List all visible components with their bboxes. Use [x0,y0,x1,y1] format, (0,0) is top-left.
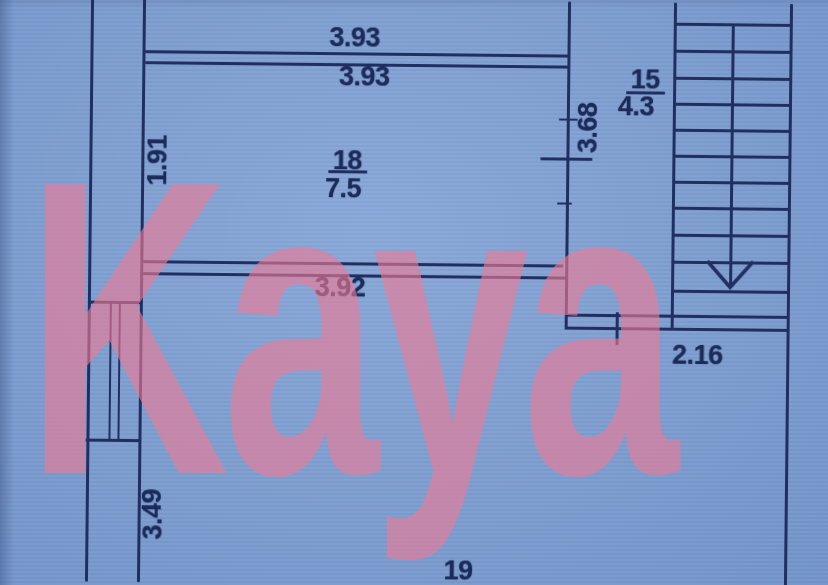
mid-wall-tick-dimension [540,157,592,160]
hall-bottom-wall-upper [565,314,790,319]
left-wall-outer-line [85,0,94,582]
window-bottom-line [85,439,141,443]
right-wall [784,4,793,585]
window-pane-line-2 [117,303,120,440]
window-top-line [88,301,143,305]
dim-upper-width-label: 3.93 [329,24,380,52]
mid-wall-tick-lower [557,202,572,204]
stair-direction-arrow [705,259,755,292]
room19-number-label: 19 [443,558,472,585]
dim-room18-lower-width-label: 3.92 [315,273,366,301]
window-pane-line-1 [108,303,111,440]
hall-bottom-wall-lower [565,327,790,332]
mid-wall [565,2,571,330]
room15-area-label: 4.3 [618,93,654,120]
dim-stair-hall-width-label: 2.16 [672,341,723,369]
room18-bottom-wall-upper [143,260,563,267]
dim-stair-hall-depth-label: 3.68 [574,102,602,153]
dim-left-wall-label: 3.49 [139,489,167,540]
dim-room18-width-label: 3.93 [339,63,390,91]
floorplan-scan: 3.93 3.93 1.91 3.92 3.68 2.16 3.49 18 7.… [0,0,828,585]
dim-room18-depth-label: 1.91 [145,135,173,186]
floorplan-drawing: 3.93 3.93 1.91 3.92 3.68 2.16 3.49 18 7.… [0,0,828,585]
room18-area-label: 7.5 [325,175,361,202]
hall-width-dimension-tick [615,312,618,345]
